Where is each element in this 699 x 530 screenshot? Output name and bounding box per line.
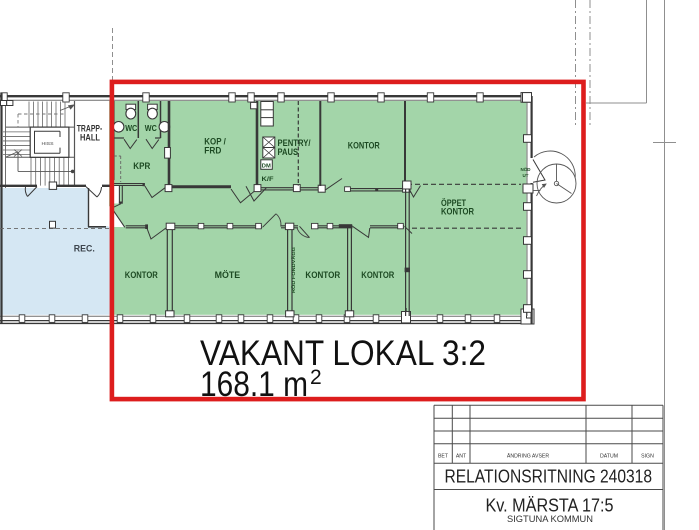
- svg-text:168.1 m: 168.1 m: [200, 365, 308, 404]
- svg-text:ÄNDRING AVSER: ÄNDRING AVSER: [507, 452, 550, 459]
- svg-text:KONTOR: KONTOR: [361, 270, 394, 280]
- svg-text:REC.: REC.: [74, 243, 95, 254]
- svg-text:K/F: K/F: [262, 176, 274, 183]
- svg-text:WC: WC: [145, 124, 157, 133]
- svg-text:UT: UT: [523, 173, 529, 178]
- svg-text:DM: DM: [262, 163, 271, 169]
- svg-text:SIGN: SIGN: [641, 453, 654, 459]
- svg-text:DATUM: DATUM: [600, 453, 618, 459]
- svg-text:HALL: HALL: [80, 133, 100, 143]
- svg-text:BET: BET: [438, 453, 449, 459]
- svg-text:NÖD: NÖD: [521, 166, 532, 172]
- svg-text:2: 2: [310, 366, 322, 389]
- svg-text:KONTOR: KONTOR: [348, 140, 380, 150]
- svg-text:SIGTUNA KOMMUN: SIGTUNA KOMMUN: [507, 514, 593, 525]
- svg-text:RÖD FONDVÄGG: RÖD FONDVÄGG: [290, 247, 297, 293]
- svg-text:FRD: FRD: [204, 145, 221, 155]
- svg-text:Kv. MÄRSTA 17:5: Kv. MÄRSTA 17:5: [486, 495, 614, 515]
- svg-text:ANT: ANT: [456, 453, 467, 459]
- svg-text:HISS: HISS: [42, 141, 54, 146]
- svg-text:WC: WC: [125, 124, 137, 133]
- svg-text:RELATIONSRITNING 240318: RELATIONSRITNING 240318: [445, 467, 653, 487]
- svg-text:KONTOR: KONTOR: [441, 206, 474, 216]
- svg-text:PAUS: PAUS: [278, 147, 299, 157]
- svg-text:KONTOR: KONTOR: [125, 270, 158, 280]
- svg-text:KPR: KPR: [133, 161, 150, 171]
- svg-text:KONTOR: KONTOR: [305, 270, 340, 280]
- svg-text:MÖTE: MÖTE: [215, 270, 241, 280]
